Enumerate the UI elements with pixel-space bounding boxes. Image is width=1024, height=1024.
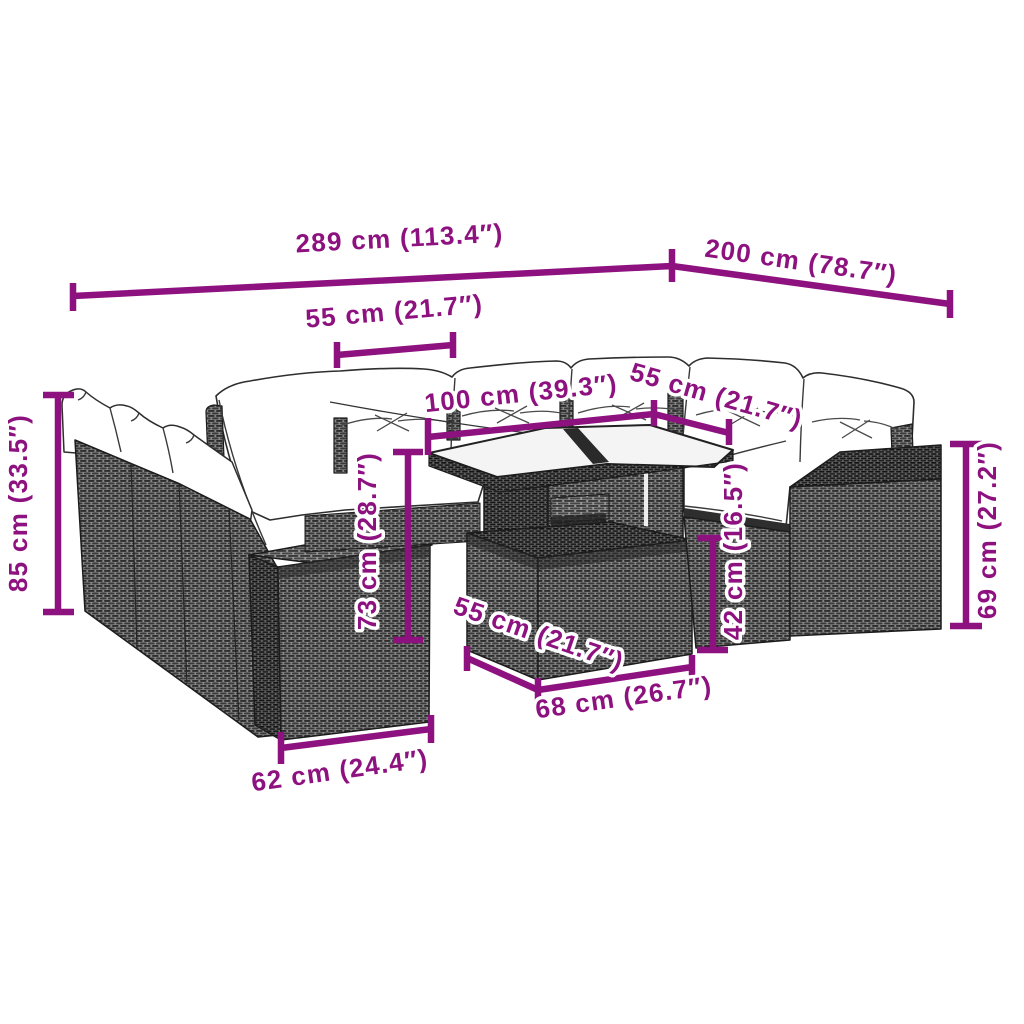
svg-text:42 cm (16.5″): 42 cm (16.5″)	[718, 462, 748, 640]
svg-text:69 cm (27.2″): 69 cm (27.2″)	[972, 441, 1002, 619]
svg-text:73 cm (28.7″): 73 cm (28.7″)	[352, 452, 382, 630]
svg-text:85 cm (33.5″): 85 cm (33.5″)	[3, 414, 33, 592]
